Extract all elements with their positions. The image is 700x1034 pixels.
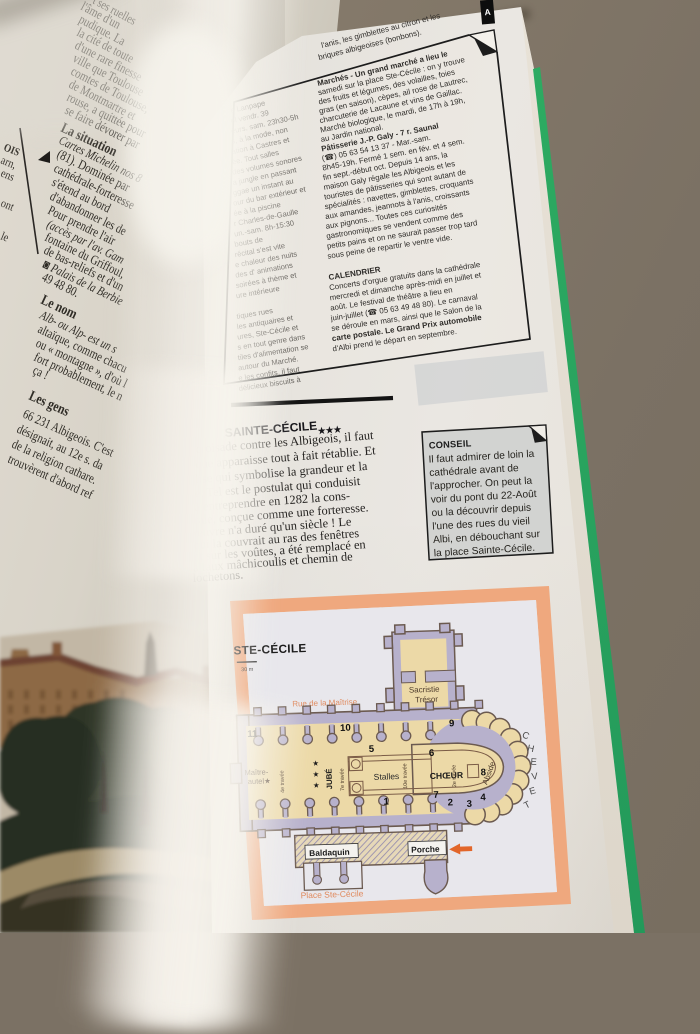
svg-text:7: 7 <box>433 790 439 801</box>
svg-text:CHŒUR: CHŒUR <box>430 770 465 781</box>
svg-text:2: 2 <box>447 797 453 808</box>
svg-text:10: 10 <box>340 723 351 734</box>
svg-text:E: E <box>530 756 537 767</box>
svg-text:Baldaquin: Baldaquin <box>309 847 350 858</box>
svg-text:2e travée: 2e travée <box>451 765 458 788</box>
svg-text:7e travée: 7e travée <box>339 768 346 791</box>
svg-text:6: 6 <box>429 748 435 759</box>
svg-text:★: ★ <box>312 759 319 768</box>
svg-text:Stalles: Stalles <box>374 771 400 782</box>
svg-text:Porche: Porche <box>411 844 440 855</box>
svg-text:3: 3 <box>466 799 472 810</box>
svg-text:★: ★ <box>313 781 320 790</box>
svg-text:Sacristie: Sacristie <box>409 685 441 695</box>
svg-text:JUBÉ: JUBÉ <box>324 768 334 789</box>
svg-text:10e travée: 10e travée <box>402 763 409 789</box>
svg-text:★: ★ <box>312 770 319 779</box>
svg-text:9: 9 <box>449 718 455 729</box>
